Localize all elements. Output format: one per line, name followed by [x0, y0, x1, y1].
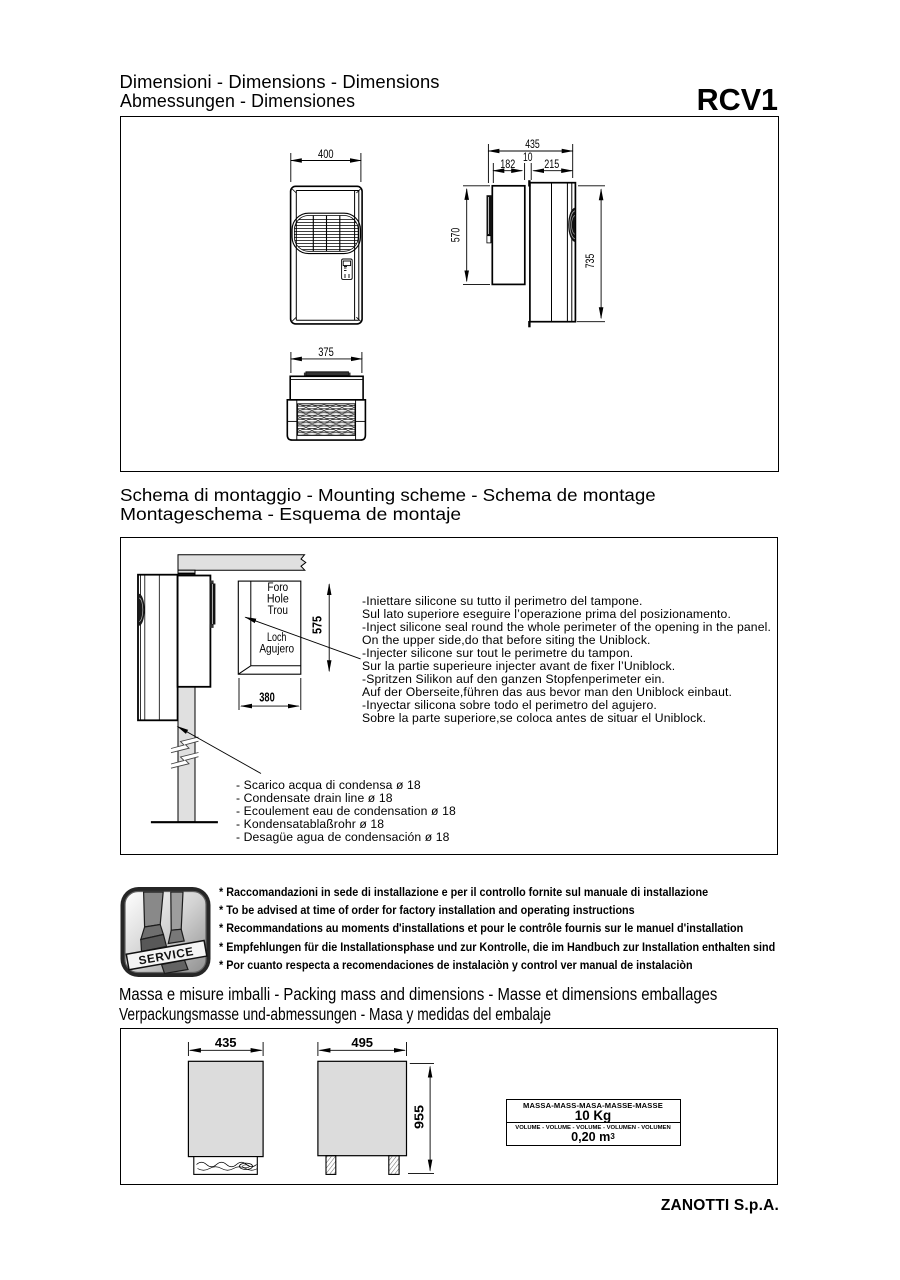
svg-text:Agujero: Agujero — [259, 644, 294, 656]
svg-text:Hole: Hole — [267, 594, 289, 606]
svg-text:182: 182 — [500, 157, 515, 171]
svg-text:Trou: Trou — [268, 605, 288, 617]
svg-text:400: 400 — [318, 147, 334, 161]
svg-text:735: 735 — [583, 253, 597, 268]
svg-text:Foro: Foro — [267, 582, 288, 594]
svg-text:10: 10 — [523, 150, 533, 164]
svg-text:375: 375 — [318, 345, 334, 359]
svg-text:495: 495 — [351, 1035, 373, 1050]
svg-text:380: 380 — [259, 690, 275, 705]
svg-text:575: 575 — [310, 616, 325, 634]
svg-text:570: 570 — [449, 227, 463, 242]
svg-text:435: 435 — [525, 137, 540, 151]
svg-text:215: 215 — [544, 157, 559, 171]
svg-text:Loch: Loch — [267, 632, 286, 644]
svg-text:435: 435 — [215, 1035, 237, 1050]
svg-text:955: 955 — [411, 1105, 426, 1129]
